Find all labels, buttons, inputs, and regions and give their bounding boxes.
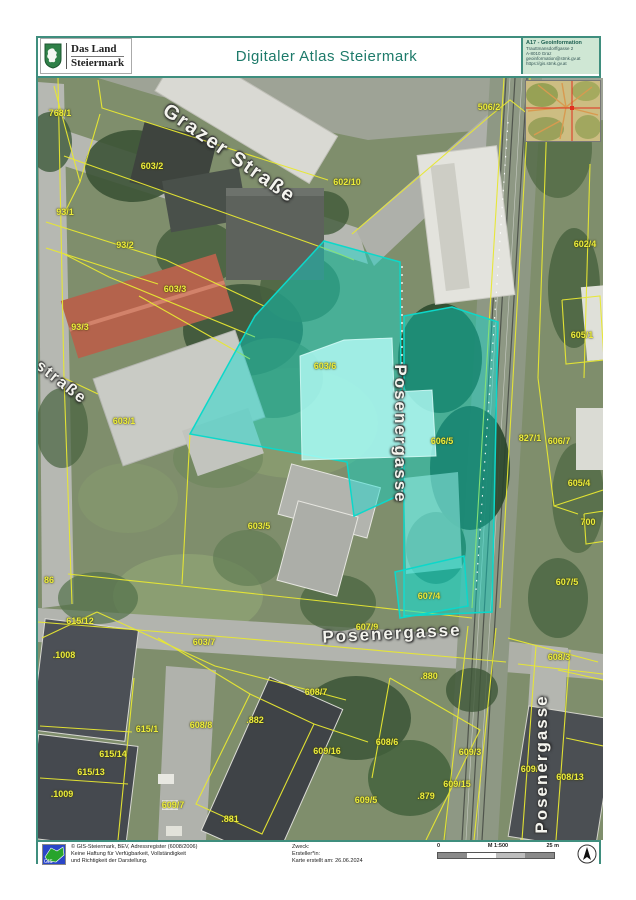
- parcel-label: 93/1: [56, 207, 74, 217]
- street-label: Grazer Straße: [158, 100, 300, 209]
- parcel-label: 609/5: [355, 795, 378, 805]
- scale-bar-segments: [437, 852, 555, 859]
- street-label: Posenergasse: [322, 620, 462, 647]
- street-label: Posenergasse: [390, 364, 410, 503]
- parcel-label: .882: [246, 715, 264, 725]
- street-label: straße: [38, 357, 90, 408]
- parcel-label: 607/4: [418, 591, 441, 601]
- logo-text: Das Land Steiermark: [66, 43, 124, 69]
- parcel-label: 603/5: [248, 521, 271, 531]
- parcel-label: 606/7: [548, 436, 571, 446]
- parcel-label: .1008: [53, 650, 76, 660]
- steiermark-crest-icon: [44, 43, 62, 69]
- land-steiermark-logo: Das Land Steiermark: [40, 38, 132, 74]
- parcel-label: 605/1: [571, 330, 594, 340]
- logo-line-2: Steiermark: [71, 57, 124, 69]
- parcel-label: 609/7: [162, 800, 185, 810]
- scale-max: 25 m: [546, 843, 559, 849]
- parcel-label: 608/7: [305, 687, 328, 697]
- parcel-label: 615/14: [99, 749, 127, 759]
- parcel-label: 609/15: [443, 779, 471, 789]
- parcel-label: 608/6: [376, 737, 399, 747]
- overview-inset-image: [526, 81, 600, 141]
- parcel-label: 615/1: [136, 724, 159, 734]
- parcel-label: 606/5: [431, 436, 454, 446]
- parcel-label: 768/1: [49, 108, 72, 118]
- scale-zero: 0: [437, 843, 440, 849]
- info-line: https://gis.stmk.gv.at: [526, 61, 596, 66]
- scale-bar: 0 M 1:500 25 m: [437, 843, 559, 859]
- parcel-label: 603/7: [193, 637, 216, 647]
- print-page-frame: Das Land Steiermark Digitaler Atlas Stei…: [36, 36, 601, 864]
- parcel-label: 827/1: [519, 433, 542, 443]
- parcel-label: 608/3: [548, 652, 571, 662]
- parcel-label: 602/10: [333, 177, 361, 187]
- parcel-label: 609/3: [459, 747, 482, 757]
- parcel-label: 608/8: [190, 720, 213, 730]
- parcel-label: 603/3: [164, 284, 187, 294]
- parcel-label: 603/1: [113, 416, 136, 426]
- parcel-label: .879: [417, 791, 435, 801]
- north-arrow-icon: [576, 843, 598, 867]
- header: Das Land Steiermark Digitaler Atlas Stei…: [38, 38, 599, 78]
- gis-steiermark-logo: GIS: [42, 844, 66, 865]
- purpose-label: Zweck:: [292, 844, 363, 851]
- parcel-label: 86: [44, 575, 54, 585]
- parcel-label: .1009: [51, 789, 74, 799]
- parcel-label: .881: [221, 814, 239, 824]
- copyright-line: Keine Haftung für Verfügbarkeit, Vollstä…: [71, 851, 197, 858]
- page-title: Digitaler Atlas Steiermark: [134, 38, 519, 74]
- scale-ratio: M 1:500: [488, 843, 508, 849]
- logo-line-1: Das Land: [71, 43, 124, 57]
- parcel-label: 506/2: [478, 102, 501, 112]
- parcel-label: 700: [580, 517, 595, 527]
- parcel-label: 608/13: [556, 772, 584, 782]
- street-label: Posenergasse: [532, 694, 552, 833]
- copyright-line: © GIS-Steiermark, BEV, Adressregister (6…: [71, 844, 197, 851]
- parcel-label: 603/6: [314, 361, 337, 371]
- parcel-label: .880: [420, 671, 438, 681]
- svg-text:GIS: GIS: [44, 859, 53, 864]
- copyright-line: und Richtigkeit der Darstellung.: [71, 858, 197, 865]
- parcel-label: 605/4: [568, 478, 591, 488]
- copyright-block: © GIS-Steiermark, BEV, Adressregister (6…: [71, 844, 197, 865]
- parcel-label: 609/16: [313, 746, 341, 756]
- parcel-label: 603/2: [141, 161, 164, 171]
- purpose-block: Zweck: Ersteller*in: Karte erstellt am: …: [292, 844, 363, 865]
- parcel-label: 602/4: [574, 239, 597, 249]
- map-area: 768/1603/293/1602/10506/293/2602/4603/39…: [38, 78, 603, 840]
- parcel-label: 615/12: [66, 616, 94, 626]
- created-date: Karte erstellt am: 26.06.2024: [292, 858, 363, 865]
- map-labels-layer: 768/1603/293/1602/10506/293/2602/4603/39…: [38, 78, 603, 840]
- department-info-box: A17 - Geoinformation Trauttmansdorffgass…: [521, 38, 599, 74]
- overview-inset-map: [525, 80, 601, 142]
- parcel-label: 93/3: [71, 322, 89, 332]
- creator-label: Ersteller*in:: [292, 851, 363, 858]
- parcel-label: 615/13: [77, 767, 105, 777]
- footer: GIS © GIS-Steiermark, BEV, Adressregiste…: [38, 840, 599, 868]
- parcel-label: 93/2: [116, 240, 134, 250]
- parcel-label: 607/5: [556, 577, 579, 587]
